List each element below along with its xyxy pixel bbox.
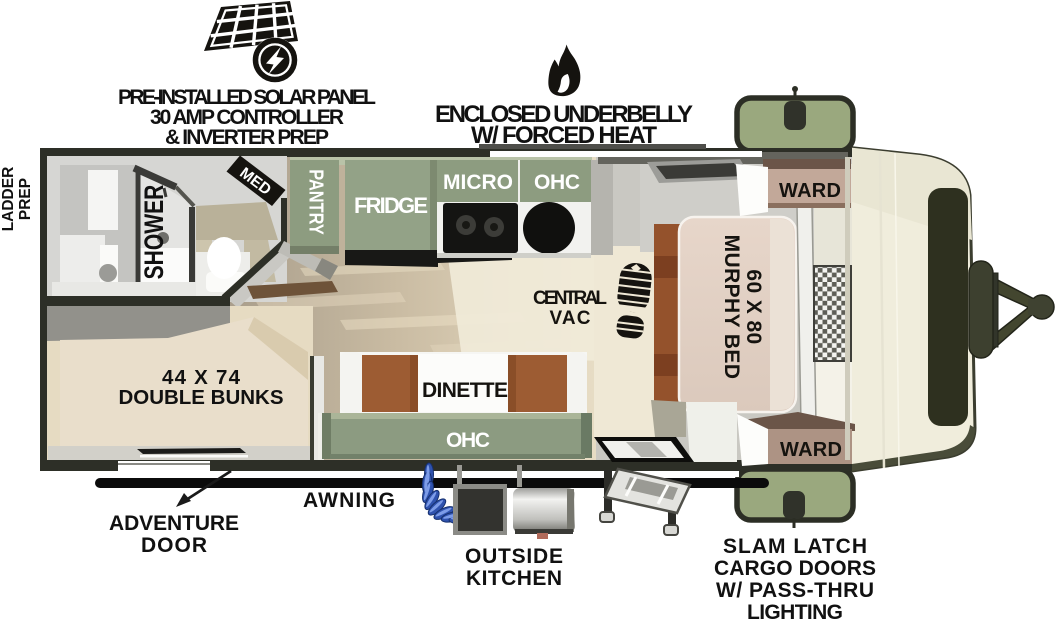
svg-text:W/ PASS-THRU: W/ PASS-THRU bbox=[716, 579, 874, 602]
svg-text:VAC: VAC bbox=[550, 308, 591, 329]
svg-text:MICRO: MICRO bbox=[443, 171, 513, 194]
svg-text:OUTSIDE: OUTSIDE bbox=[465, 545, 563, 568]
svg-text:KITCHEN: KITCHEN bbox=[466, 567, 562, 590]
svg-text:DOUBLE BUNKS: DOUBLE BUNKS bbox=[119, 386, 284, 409]
svg-text:WARD: WARD bbox=[780, 439, 842, 461]
svg-text:DOOR: DOOR bbox=[141, 534, 207, 557]
svg-text:WARD: WARD bbox=[779, 180, 841, 202]
svg-text:CENTRAL: CENTRAL bbox=[533, 288, 607, 309]
svg-text:SLAM LATCH: SLAM LATCH bbox=[723, 535, 867, 558]
svg-text:ADVENTURE: ADVENTURE bbox=[109, 512, 239, 535]
svg-text:LIGHTING: LIGHTING bbox=[747, 601, 843, 621]
svg-text:FRIDGE: FRIDGE bbox=[354, 193, 428, 218]
svg-text:& INVERTER PREP: & INVERTER PREP bbox=[165, 126, 329, 149]
svg-text:SHOWER: SHOWER bbox=[140, 185, 170, 280]
svg-text:LADDER: LADDER bbox=[0, 167, 17, 232]
svg-text:OHC: OHC bbox=[534, 171, 580, 194]
svg-text:CARGO DOORS: CARGO DOORS bbox=[714, 557, 876, 580]
svg-text:PANTRY: PANTRY bbox=[305, 169, 328, 235]
svg-text:DINETTE: DINETTE bbox=[422, 379, 508, 402]
svg-text:AWNING: AWNING bbox=[303, 489, 395, 512]
svg-text:PREP: PREP bbox=[17, 178, 34, 220]
svg-text:OHC: OHC bbox=[446, 429, 490, 452]
